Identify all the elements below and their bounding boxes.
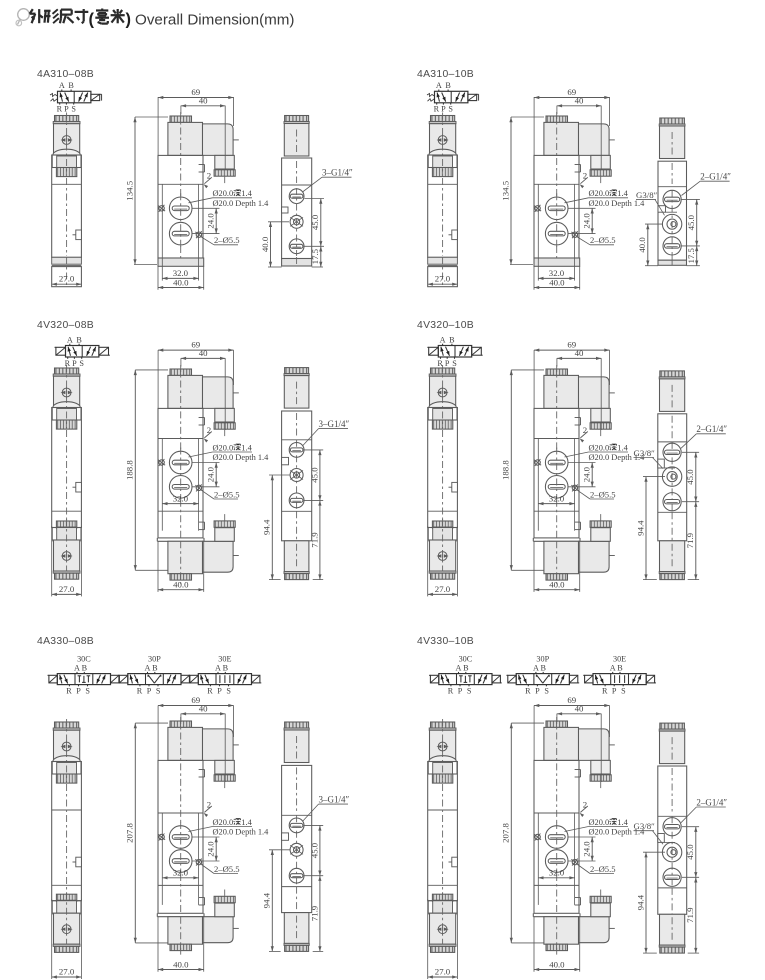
svg-text:2–Ø5.5: 2–Ø5.5	[590, 235, 616, 245]
svg-text:A: A	[533, 664, 539, 673]
svg-text:40: 40	[199, 703, 208, 713]
svg-text:24.0: 24.0	[582, 213, 592, 229]
svg-text:3–G1/4″: 3–G1/4″	[319, 795, 350, 805]
svg-text:40.0: 40.0	[260, 236, 270, 252]
svg-text:32.0: 32.0	[173, 868, 189, 878]
svg-text:Ø20.0 Depth 1.4: Ø20.0 Depth 1.4	[589, 199, 646, 208]
svg-text:27.0: 27.0	[59, 274, 75, 284]
svg-text:S: S	[226, 686, 231, 695]
svg-text:1.4: 1.4	[617, 189, 628, 198]
svg-text:S: S	[71, 105, 76, 114]
svg-text:71.9: 71.9	[685, 532, 695, 548]
svg-text:S: S	[452, 359, 457, 368]
svg-text:3–G1/4″: 3–G1/4″	[322, 168, 353, 178]
svg-text:45.0: 45.0	[310, 214, 320, 230]
svg-text:P: P	[217, 686, 222, 695]
svg-text:Ø20.0 Depth 1.4: Ø20.0 Depth 1.4	[213, 453, 270, 462]
svg-text:1.4: 1.4	[617, 443, 628, 452]
svg-text:Ø20.0 Depth 1.4: Ø20.0 Depth 1.4	[213, 199, 270, 208]
svg-text:B: B	[152, 664, 158, 673]
svg-text:P: P	[147, 686, 152, 695]
svg-text:2–Ø5.5: 2–Ø5.5	[214, 489, 240, 499]
svg-text:45.0: 45.0	[309, 842, 319, 858]
svg-text:B: B	[82, 664, 88, 673]
svg-text:B: B	[449, 335, 455, 344]
svg-text:Ø20.0: Ø20.0	[589, 818, 610, 827]
svg-text:A: A	[440, 335, 446, 344]
svg-text:S: S	[467, 686, 472, 695]
svg-text:A: A	[67, 335, 73, 344]
svg-text:24.0: 24.0	[206, 841, 216, 857]
svg-text:27.0: 27.0	[435, 584, 451, 594]
svg-text:P: P	[535, 686, 540, 695]
svg-text:40: 40	[199, 95, 208, 105]
svg-text:207.8: 207.8	[125, 823, 135, 843]
svg-text:R: R	[137, 686, 143, 695]
svg-text:40: 40	[575, 348, 584, 358]
svg-text:17.5: 17.5	[310, 248, 320, 264]
svg-text:A: A	[145, 664, 151, 673]
svg-text:P: P	[458, 686, 463, 695]
svg-text:94.4: 94.4	[635, 894, 645, 910]
svg-text:P: P	[72, 359, 77, 368]
svg-text:71.9: 71.9	[309, 532, 319, 548]
svg-text:A: A	[436, 81, 442, 90]
svg-text:207.8: 207.8	[501, 823, 511, 843]
svg-text:B: B	[445, 81, 451, 90]
svg-text:R: R	[57, 105, 63, 114]
svg-text:3–G1/4″: 3–G1/4″	[319, 419, 350, 429]
svg-text:32.0: 32.0	[549, 493, 565, 503]
svg-text:45.0: 45.0	[685, 469, 695, 485]
svg-text:40.0: 40.0	[549, 959, 565, 969]
svg-text:1.4: 1.4	[241, 443, 252, 452]
svg-text:30P: 30P	[536, 655, 549, 664]
svg-text:24.0: 24.0	[582, 841, 592, 857]
svg-text:A: A	[610, 664, 616, 673]
svg-text:2–Ø5.5: 2–Ø5.5	[590, 864, 616, 874]
svg-text:S: S	[79, 359, 84, 368]
svg-text:45.0: 45.0	[685, 844, 695, 860]
svg-text:A: A	[74, 664, 80, 673]
svg-text:S: S	[544, 686, 549, 695]
svg-text:24.0: 24.0	[206, 466, 216, 482]
svg-text:G3/8″: G3/8″	[634, 821, 656, 831]
svg-text:2–G1/4″: 2–G1/4″	[696, 424, 727, 434]
svg-text:2–Ø5.5: 2–Ø5.5	[214, 235, 240, 245]
svg-text:40.0: 40.0	[637, 237, 647, 253]
svg-text:G3/8″: G3/8″	[634, 448, 656, 458]
svg-text:1.4: 1.4	[241, 189, 252, 198]
svg-text:30C: 30C	[459, 655, 473, 664]
svg-text:B: B	[463, 664, 469, 673]
svg-text:40.0: 40.0	[173, 580, 189, 590]
svg-text:(: (	[89, 11, 95, 29]
svg-text:30C: 30C	[77, 655, 91, 664]
svg-text:40: 40	[575, 703, 584, 713]
svg-text:32.0: 32.0	[173, 493, 189, 503]
svg-text:G3/8″: G3/8″	[636, 190, 658, 200]
svg-text:188.8: 188.8	[501, 460, 511, 480]
svg-text:A: A	[59, 81, 65, 90]
svg-text:4V320–08B: 4V320–08B	[37, 320, 94, 331]
svg-text:P: P	[64, 105, 69, 114]
svg-text:B: B	[540, 664, 546, 673]
svg-text:4A310–08B: 4A310–08B	[37, 69, 94, 80]
svg-text:P: P	[76, 686, 81, 695]
svg-text:24.0: 24.0	[582, 466, 592, 482]
svg-text:R: R	[207, 686, 213, 695]
svg-text:R: R	[66, 686, 72, 695]
svg-text:1.4: 1.4	[617, 818, 628, 827]
svg-text:1.4: 1.4	[241, 818, 252, 827]
svg-text:24.0: 24.0	[206, 213, 216, 229]
svg-text:S: S	[156, 686, 161, 695]
svg-text:): )	[126, 11, 132, 29]
svg-text:30E: 30E	[613, 655, 626, 664]
svg-text:30E: 30E	[218, 655, 231, 664]
svg-text:B: B	[68, 81, 74, 90]
svg-text:2–G1/4″: 2–G1/4″	[700, 172, 731, 182]
svg-text:94.4: 94.4	[262, 519, 272, 535]
svg-text:40.0: 40.0	[549, 277, 565, 287]
svg-text:B: B	[76, 335, 82, 344]
svg-text:R: R	[65, 359, 71, 368]
svg-text:32.0: 32.0	[549, 868, 565, 878]
svg-text:94.4: 94.4	[262, 892, 272, 908]
svg-text:45.0: 45.0	[686, 214, 696, 230]
svg-text:Ø20.0: Ø20.0	[213, 443, 234, 452]
svg-text:S: S	[448, 105, 453, 114]
svg-text:71.9: 71.9	[685, 907, 695, 923]
svg-text:B: B	[223, 664, 229, 673]
svg-text:94.4: 94.4	[635, 520, 645, 536]
svg-text:P: P	[612, 686, 617, 695]
svg-text:S: S	[621, 686, 626, 695]
svg-text:Ø20.0: Ø20.0	[589, 443, 610, 452]
svg-text:B: B	[617, 664, 623, 673]
svg-text:40.0: 40.0	[173, 277, 189, 287]
svg-text:Ø20.0: Ø20.0	[589, 189, 610, 198]
svg-text:4A310–10B: 4A310–10B	[417, 69, 474, 80]
svg-text:40.0: 40.0	[173, 959, 189, 969]
svg-text:P: P	[445, 359, 450, 368]
svg-text:40: 40	[199, 348, 208, 358]
svg-text:134.5: 134.5	[500, 180, 510, 200]
svg-text:27.0: 27.0	[59, 584, 75, 594]
svg-text:R: R	[525, 686, 531, 695]
svg-text:17.5: 17.5	[686, 248, 696, 264]
svg-text:A: A	[456, 664, 462, 673]
svg-text:188.8: 188.8	[125, 460, 135, 480]
svg-text:30P: 30P	[148, 655, 161, 664]
svg-text:Ø20.0 Depth 1.4: Ø20.0 Depth 1.4	[213, 828, 270, 837]
svg-text:45.0: 45.0	[309, 467, 319, 483]
svg-text:2–Ø5.5: 2–Ø5.5	[590, 489, 616, 499]
svg-text:4V320–10B: 4V320–10B	[417, 320, 474, 331]
svg-text:R: R	[448, 686, 454, 695]
svg-text:4A330–08B: 4A330–08B	[37, 636, 94, 647]
svg-text:27.0: 27.0	[59, 967, 75, 977]
svg-text:R: R	[434, 105, 440, 114]
svg-text:Ø20.0: Ø20.0	[213, 189, 234, 198]
svg-text:40.0: 40.0	[549, 580, 565, 590]
svg-text:134.5: 134.5	[124, 180, 134, 200]
svg-text:R: R	[602, 686, 608, 695]
svg-text:4V330–10B: 4V330–10B	[417, 636, 474, 647]
svg-text:27.0: 27.0	[435, 274, 451, 284]
svg-text:P: P	[441, 105, 446, 114]
svg-text:71.9: 71.9	[309, 905, 319, 921]
svg-text:2–G1/4″: 2–G1/4″	[696, 797, 727, 807]
svg-text:2–Ø5.5: 2–Ø5.5	[214, 864, 240, 874]
svg-text:27.0: 27.0	[435, 967, 451, 977]
svg-text:A: A	[215, 664, 221, 673]
svg-text:S: S	[85, 686, 90, 695]
svg-text:Ø20.0: Ø20.0	[213, 818, 234, 827]
svg-text:Overall Dimension(mm): Overall Dimension(mm)	[135, 12, 295, 29]
svg-text:40: 40	[575, 95, 584, 105]
